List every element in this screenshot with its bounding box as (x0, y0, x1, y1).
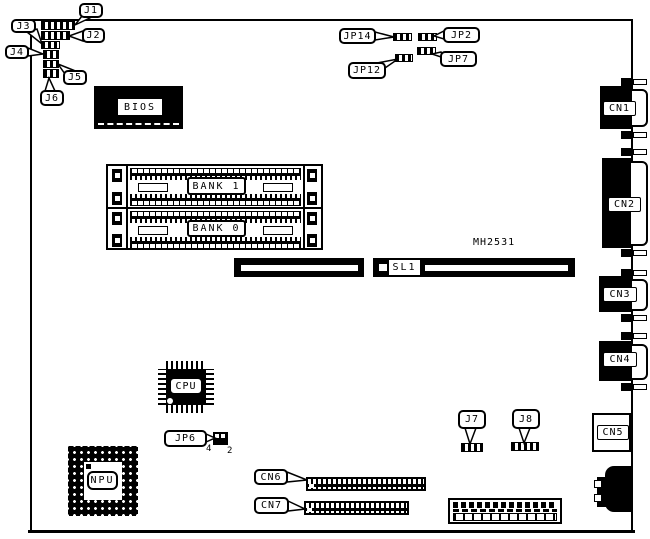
jp14-jumper-pins (393, 33, 412, 41)
bank1-bottom-cells (130, 200, 301, 206)
simm-clip (307, 212, 317, 225)
j2-jumper-pins (41, 31, 70, 40)
bios-notch-line (98, 123, 179, 125)
cpu-pins-top (166, 361, 206, 369)
j7-jumper-pins (461, 443, 483, 452)
callout-jp14: JP14 (339, 28, 376, 44)
j5-jumper-pins (43, 60, 59, 68)
cn1-label: CN1 (603, 101, 636, 116)
board-edge-left (30, 19, 32, 531)
npu-center: NPU (84, 462, 122, 500)
cpu-label: CPU (170, 378, 202, 394)
cn6-pin1-mark (309, 484, 314, 488)
keyboard-din-connector (605, 466, 633, 512)
callout-jp7: JP7 (440, 51, 477, 67)
bank1-bar-right (263, 183, 293, 192)
cpu-pins-left (158, 369, 166, 405)
jp2-jumper-pins (418, 33, 437, 41)
sl1-slot: SL1 (373, 258, 575, 277)
callout-jp6: JP6 (164, 430, 207, 447)
npu-label: NPU (87, 471, 118, 490)
j1-jumper-pins (41, 21, 75, 30)
jp6-pin4-number: 4 (206, 444, 211, 454)
simm-clip (307, 169, 317, 182)
jp6-jumper-block (213, 432, 228, 445)
j6-jumper-pins (43, 69, 59, 78)
callout-j4: J4 (5, 45, 29, 59)
sl1-label: SL1 (389, 260, 420, 275)
bank1-bar-left (138, 183, 168, 192)
callout-j3: J3 (11, 19, 36, 33)
simm-clip (307, 192, 317, 205)
pointer-j8 (519, 428, 530, 443)
board-edge-top (30, 19, 633, 21)
pointer-jp14 (375, 32, 394, 40)
cn7-header (304, 501, 409, 515)
power-connector (448, 498, 562, 524)
simm-clip (112, 169, 122, 182)
bank-divider (108, 207, 321, 209)
callout-j5: J5 (63, 70, 87, 85)
cn7-pin1-mark (307, 508, 312, 512)
bios-chip: BIOS (94, 86, 183, 129)
part-number-text: MH2531 (473, 237, 515, 248)
cn3-label: CN3 (603, 287, 637, 302)
npu-socket: NPU (68, 446, 138, 516)
callout-j8: J8 (512, 409, 540, 429)
motherboard-diagram: BIOS BANK 1 BANK 0 (0, 0, 650, 539)
simm-clip (112, 212, 122, 225)
cn4-label: CN4 (603, 352, 637, 367)
npu-pin1-mark (86, 464, 91, 469)
callout-j1: J1 (79, 3, 103, 18)
sl1-pin1-mark (379, 264, 387, 271)
j4-jumper-pins (43, 50, 59, 59)
cn6-header (306, 477, 426, 491)
cn5-label: CN5 (597, 425, 629, 440)
callout-jp12: JP12 (348, 62, 386, 79)
callout-j6: J6 (40, 90, 64, 106)
pointer-j7 (465, 428, 476, 444)
cpu-pins-right (206, 369, 214, 405)
jp12-jumper-pins (395, 54, 413, 62)
j8-jumper-pins (511, 442, 539, 451)
callout-cn6: CN6 (254, 469, 288, 485)
pointer-cn6 (287, 472, 307, 482)
j3-jumper-pins (41, 41, 60, 49)
jp7-jumper-pins (417, 47, 436, 55)
callout-cn7: CN7 (254, 497, 289, 514)
simm-clip (112, 192, 122, 205)
memory-slot (234, 258, 364, 277)
callout-j2: J2 (82, 28, 105, 43)
jp6-pin2-number: 2 (227, 446, 232, 456)
pointer-j2 (69, 31, 83, 41)
board-edge-bottom (28, 530, 635, 533)
cpu-pin1-dot (167, 398, 173, 404)
cpu-pins-bottom (166, 405, 206, 413)
bank1-label: BANK 1 (187, 177, 246, 195)
bios-label: BIOS (118, 99, 162, 115)
bank0-bar-right (263, 226, 293, 235)
cn2-label: CN2 (608, 197, 641, 212)
bank0-bottom-cells (130, 243, 301, 249)
bank0-bar-left (138, 226, 168, 235)
simm-clip (112, 234, 122, 247)
bank0-label: BANK 0 (187, 220, 246, 237)
simm-clip (307, 234, 317, 247)
callout-j7: J7 (458, 410, 486, 429)
pointer-cn7 (288, 501, 305, 511)
callout-jp2: JP2 (443, 27, 480, 43)
cpu-chip: CPU (166, 369, 206, 405)
